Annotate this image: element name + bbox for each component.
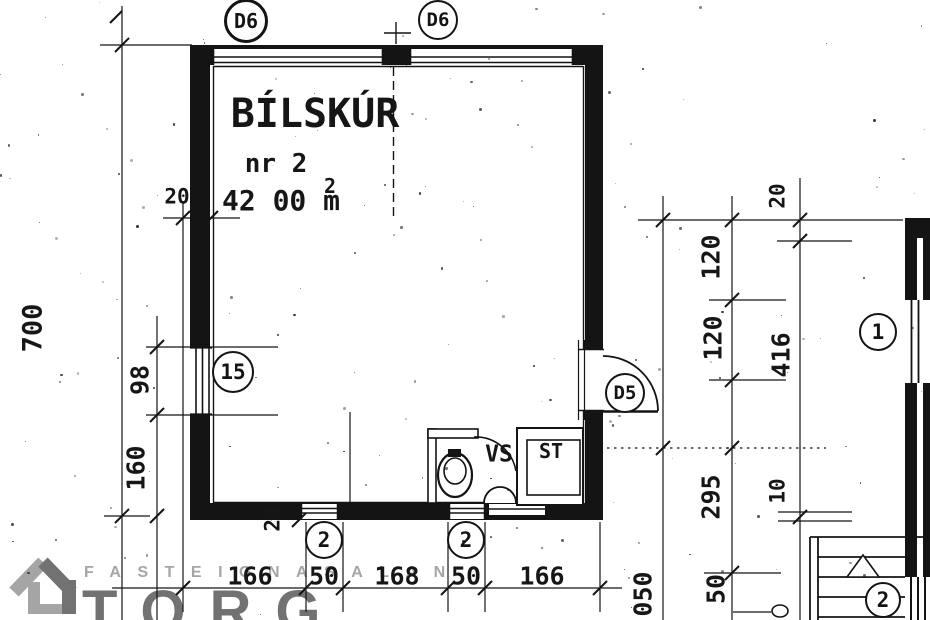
marker-window-2-right: 2: [447, 521, 485, 559]
marker-window-15: 15: [212, 351, 254, 393]
dim-bottom-50a: 50: [309, 564, 339, 589]
room-vs-label: VS: [485, 444, 513, 467]
dim-bottom-168: 168: [374, 564, 419, 589]
room-area-label: 42 00 m: [222, 187, 340, 215]
room-number-label: nr 2: [245, 151, 308, 177]
window-15-left-wall: [190, 347, 212, 415]
dim-right-10: 10: [768, 478, 789, 503]
dim-right-120a: 120: [699, 234, 724, 279]
dim-right-wall: 20: [768, 183, 789, 208]
dim-left-lower: 160: [124, 445, 149, 490]
dim-bottom-166b: 166: [519, 564, 564, 589]
dim-right-416: 416: [769, 332, 794, 377]
dim-bottom-166a: 166: [227, 564, 272, 589]
window-2-bottom-right: [449, 504, 485, 519]
marker-door-d5: D5: [605, 373, 645, 413]
window-2-bottom-left: [301, 504, 338, 519]
dim-bottom-50b: 50: [451, 564, 481, 589]
toilet-icon: [438, 453, 472, 497]
room-name-label: BÍLSKÚR: [231, 94, 400, 134]
dim-right-120b: 120: [701, 315, 726, 360]
dim-left-window: 98: [128, 365, 153, 395]
marker-garage-door-right: D6: [418, 0, 458, 40]
washbasin-icon: [484, 487, 516, 503]
marker-window-2-left: 2: [305, 521, 343, 559]
dimension-lines: [100, 6, 903, 620]
marker-garage-door-left: D6: [224, 0, 268, 43]
dim-right-050: 050: [631, 571, 656, 616]
marker-neighbor-wall-1: 1: [859, 313, 897, 351]
marker-stairs-2: 2: [865, 582, 901, 618]
stairs-up-arrow: [847, 555, 879, 577]
room-area-exponent: 2: [324, 174, 336, 198]
room-st-label: ST: [539, 441, 563, 461]
neighbor-building-wall: [905, 218, 930, 620]
dim-left-wall: 20: [164, 187, 189, 208]
dim-bottom-wall: 20: [263, 506, 284, 531]
dim-right-50: 50: [704, 574, 729, 604]
dim-right-295: 295: [699, 474, 724, 519]
floor-plan-sheet: FASTEIGNASALAN TORG: [0, 0, 930, 620]
dim-left-height: 700: [20, 304, 47, 353]
